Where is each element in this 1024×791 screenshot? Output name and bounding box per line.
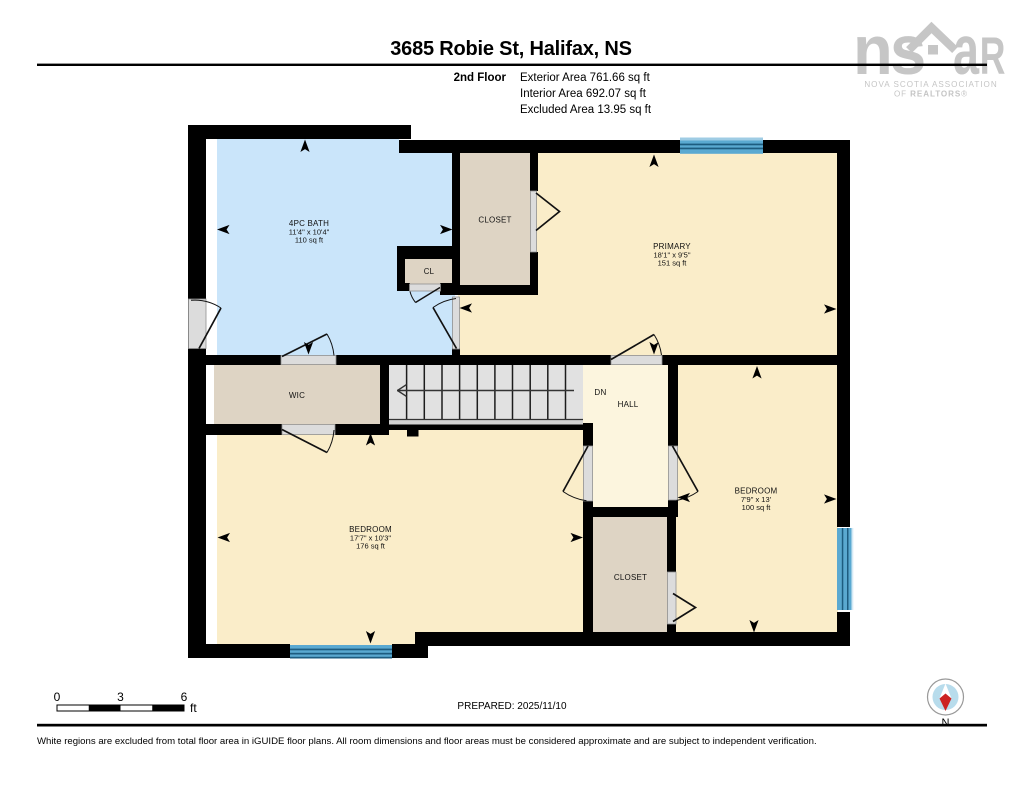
svg-text:NOVA SCOTIA ASSOCIATION: NOVA SCOTIA ASSOCIATION xyxy=(864,80,997,89)
svg-text:WIC: WIC xyxy=(289,391,305,400)
svg-text:2nd Floor: 2nd Floor xyxy=(454,72,507,84)
svg-text:CL: CL xyxy=(424,267,435,276)
svg-text:HALL: HALL xyxy=(618,400,639,409)
svg-text:176 sq ft: 176 sq ft xyxy=(356,542,386,551)
svg-text:ft: ft xyxy=(190,701,197,715)
svg-text:3: 3 xyxy=(117,690,124,704)
svg-text:110 sq ft: 110 sq ft xyxy=(295,236,324,245)
svg-text:N: N xyxy=(942,717,950,729)
svg-text:151 sq ft: 151 sq ft xyxy=(658,259,688,268)
svg-text:a: a xyxy=(953,11,980,90)
svg-text:CLOSET: CLOSET xyxy=(614,573,647,582)
svg-text:100 sq ft: 100 sq ft xyxy=(742,503,772,512)
svg-text:0: 0 xyxy=(54,690,61,704)
svg-text:6: 6 xyxy=(181,690,188,704)
svg-text:Interior Area 692.07 sq ft: Interior Area 692.07 sq ft xyxy=(520,88,647,100)
svg-text:PREPARED: 2025/11/10: PREPARED: 2025/11/10 xyxy=(457,701,567,712)
svg-text:R: R xyxy=(980,26,1006,86)
svg-text:3685 Robie St, Halifax, NS: 3685 Robie St, Halifax, NS xyxy=(390,38,632,60)
svg-text:OF REALTORS®: OF REALTORS® xyxy=(894,90,968,99)
svg-text:CLOSET: CLOSET xyxy=(478,216,511,225)
svg-text:Exterior Area 761.66 sq ft: Exterior Area 761.66 sq ft xyxy=(520,72,651,84)
svg-text:DN: DN xyxy=(594,388,606,397)
svg-text:Excluded Area 13.95 sq ft: Excluded Area 13.95 sq ft xyxy=(520,104,652,116)
svg-text:White regions are excluded fro: White regions are excluded from total fl… xyxy=(37,736,817,747)
